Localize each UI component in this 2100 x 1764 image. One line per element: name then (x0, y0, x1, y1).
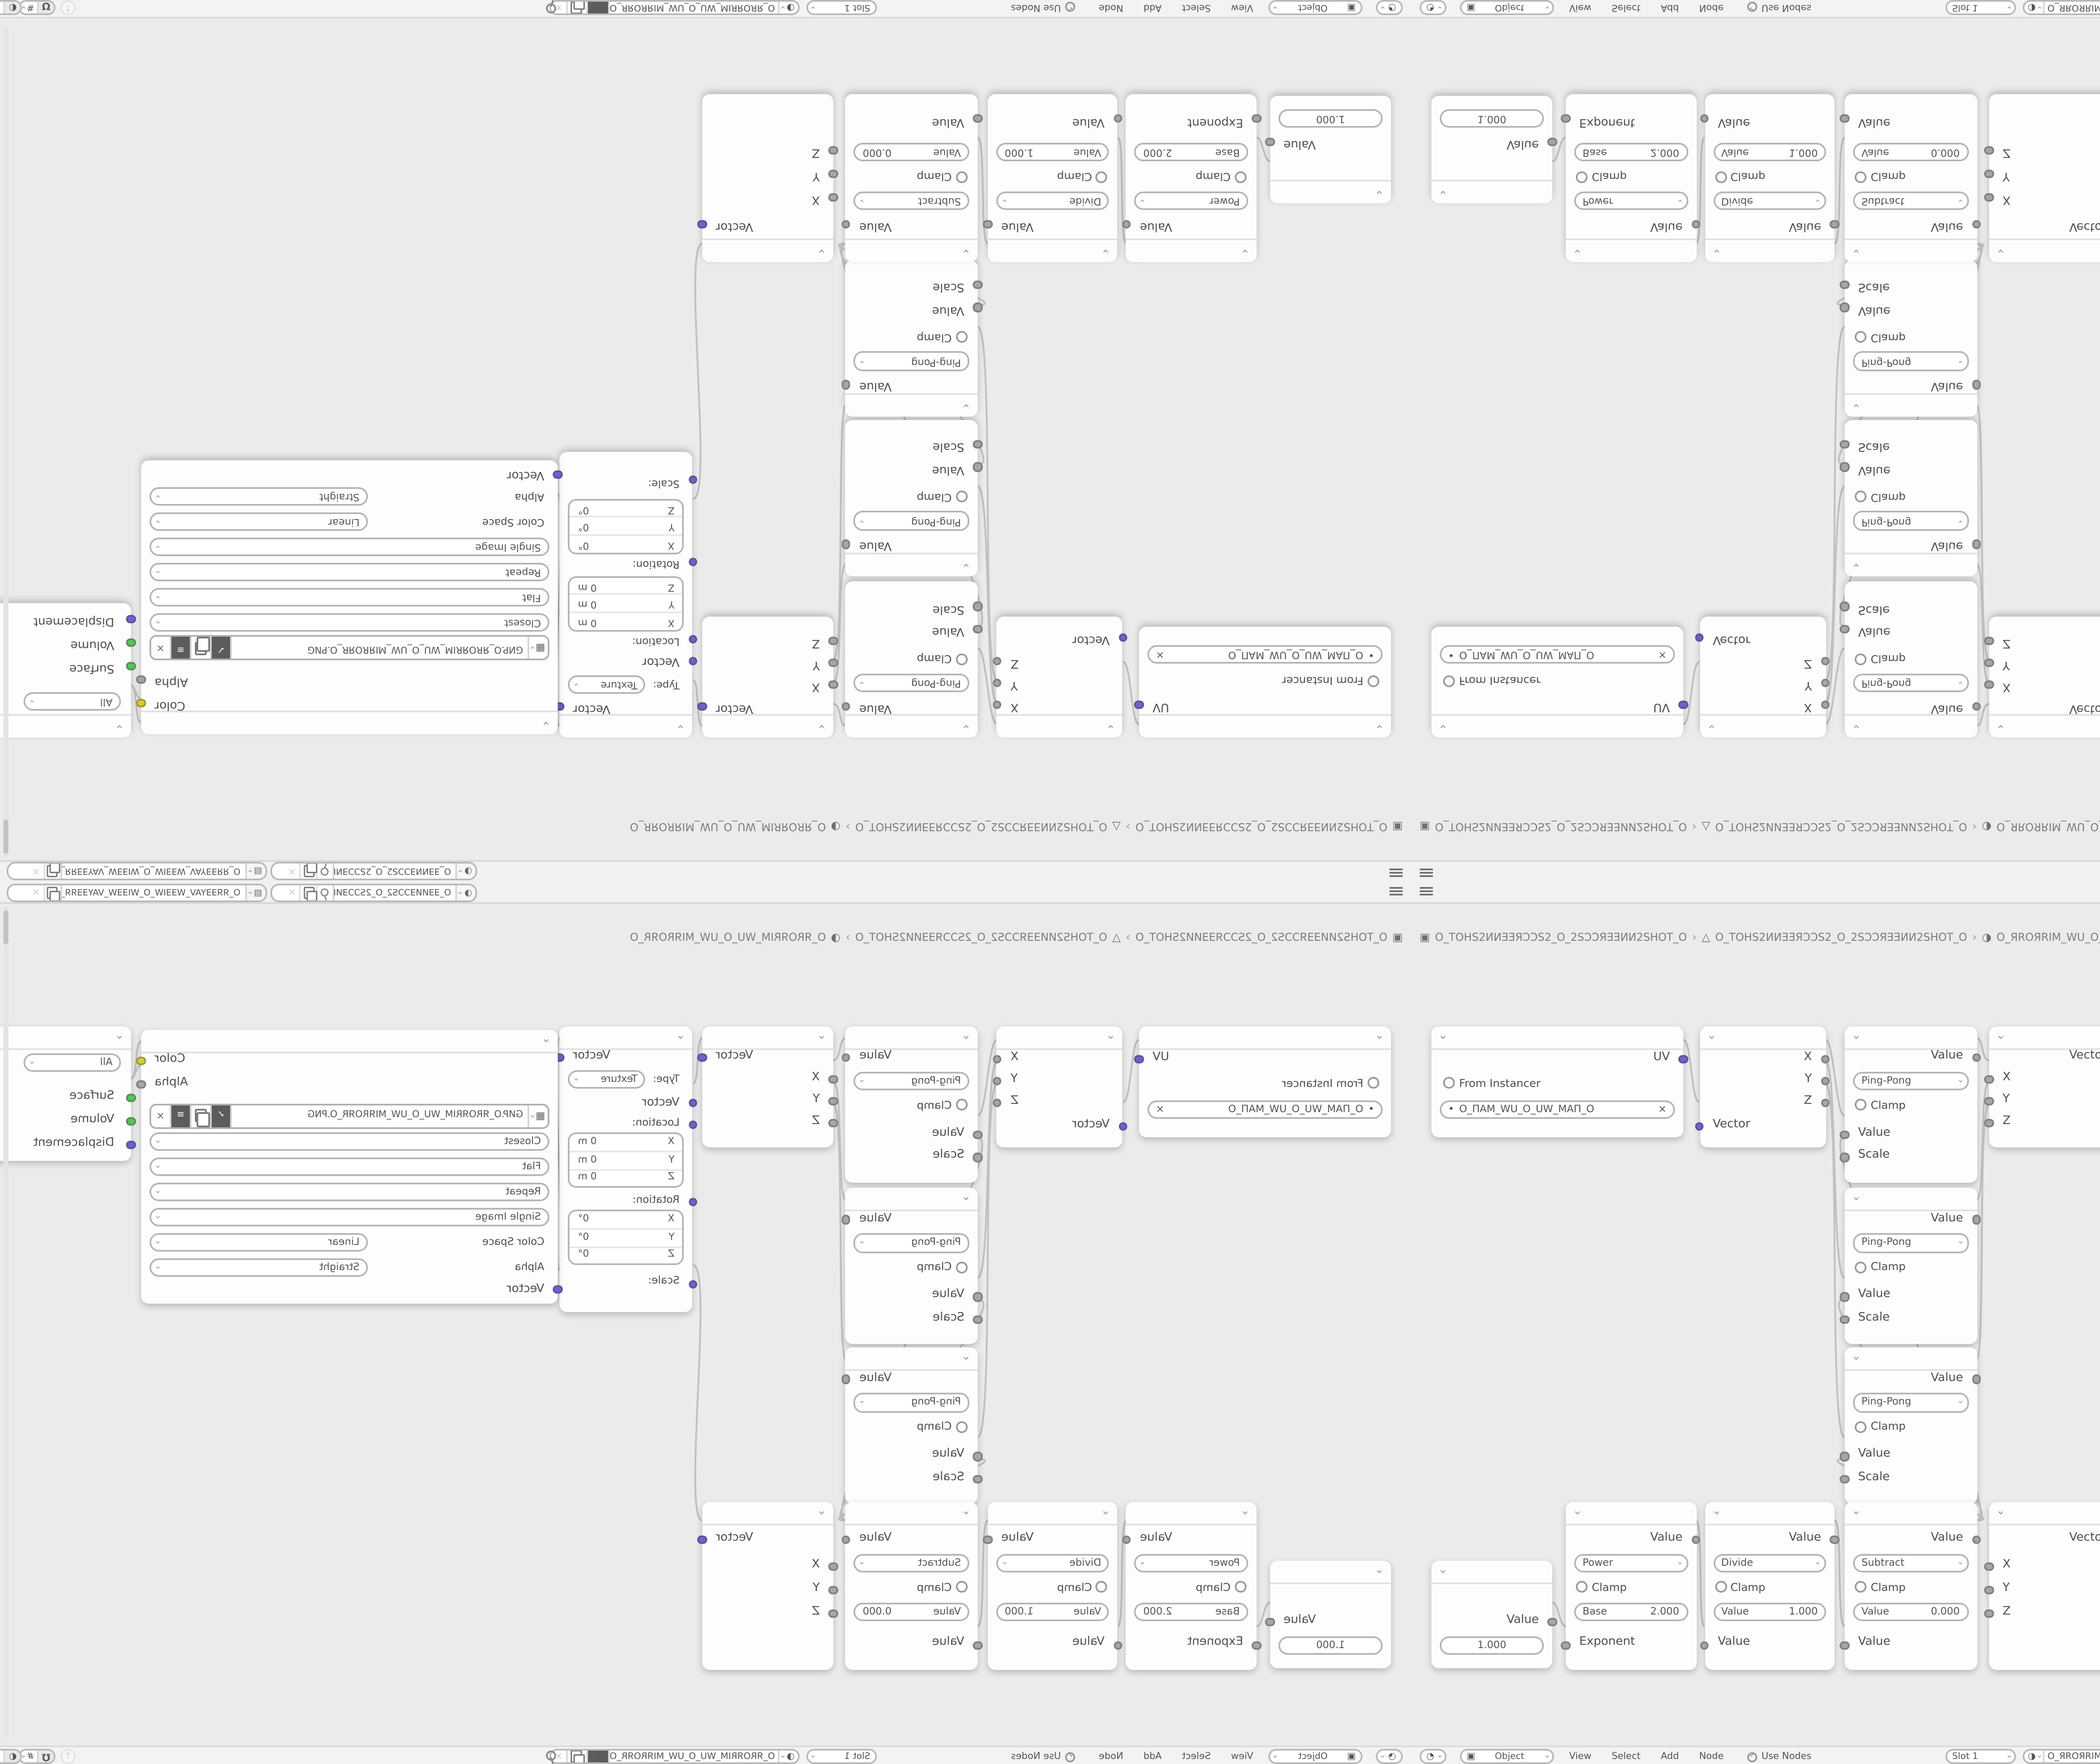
menu-view[interactable]: View (1228, 3, 1257, 13)
value-input-socket[interactable] (1700, 114, 1709, 123)
value-input-socket[interactable] (1840, 463, 1849, 472)
shader-mode-dropdown[interactable]: ▣Object› (1268, 0, 1362, 15)
combine-xyz-node[interactable]: › Vector X Y Z (702, 1026, 833, 1147)
close-icon[interactable]: × (285, 863, 300, 878)
target-dropdown[interactable]: All› (24, 692, 121, 711)
y-input-socket[interactable] (829, 1585, 838, 1594)
target-dropdown[interactable]: All› (24, 1053, 121, 1072)
scale-input-socket[interactable] (1840, 1474, 1849, 1483)
scrollbar-thumb[interactable] (3, 821, 8, 854)
vector-output-socket[interactable] (698, 1535, 707, 1544)
y-input-socket[interactable] (829, 170, 838, 179)
math-power-node[interactable]: › Value Power› Clamp Base2.000 Exponent (1126, 1501, 1257, 1669)
exponent-input-socket[interactable] (1561, 114, 1570, 123)
clamp-checkbox[interactable]: Clamp (917, 1580, 968, 1593)
collapse-icon[interactable]: › (816, 1034, 828, 1039)
clamp-checkbox[interactable]: Clamp (1855, 491, 1906, 504)
pin-button[interactable] (548, 1750, 558, 1764)
from-instancer-checkbox[interactable]: From Instancer (1443, 675, 1541, 688)
value-field[interactable]: Value0.000 (1853, 143, 1968, 162)
vector-input-socket[interactable] (688, 1098, 698, 1107)
scene-icon[interactable]: ◑› (456, 886, 475, 901)
pin-icon[interactable] (317, 863, 333, 878)
volume-input-socket[interactable] (126, 1116, 136, 1126)
collapse-icon[interactable]: › (1994, 725, 2006, 730)
collapse-icon[interactable]: › (1850, 1356, 1861, 1360)
new-material-icon[interactable] (566, 1751, 587, 1762)
material-selector[interactable]: ◑› O_ЯROЯRIM_WU_O_UW_MIЯROЯR_O ✓ × (550, 1750, 800, 1764)
collapse-icon[interactable]: › (961, 1509, 973, 1514)
math-power-node[interactable]: › Value Power› Clamp Base2.000 Exponent (1566, 1501, 1696, 1669)
collapse-icon[interactable]: › (114, 725, 126, 730)
editor-type-dropdown[interactable]: ◔› (1375, 0, 1403, 15)
alpha-mode-dropdown[interactable]: Straight› (150, 487, 368, 507)
value-input-socket[interactable] (1840, 1641, 1849, 1650)
value-input-socket[interactable] (973, 1130, 982, 1139)
operation-dropdown[interactable]: Ping-Pong› (1853, 1233, 1968, 1252)
new-viewlayer-icon[interactable] (44, 863, 60, 878)
value-input-socket[interactable] (1840, 303, 1849, 312)
uv-map-node[interactable]: › UV From Instancer • O_ПAM_WU_O_UW_MAП_… (1431, 1026, 1683, 1137)
rotation-x-field[interactable]: X0° (570, 536, 683, 554)
collapse-icon[interactable]: › (1709, 1509, 1721, 1514)
operation-dropdown[interactable]: Ping-Pong› (854, 1393, 969, 1412)
value-output-socket[interactable] (841, 540, 850, 549)
scale-input-socket[interactable] (1840, 1152, 1849, 1162)
menu-add[interactable]: Add (1657, 3, 1682, 13)
material-name-field[interactable]: O_ЯROЯRIM_WU_O_UW_MIЯROЯR_O (609, 2, 778, 13)
menu-node[interactable]: Node (1696, 3, 1727, 13)
value-node[interactable]: › Value 1.000 (1270, 1560, 1391, 1667)
snap-magnet-icon[interactable]: Ω (38, 1751, 55, 1762)
value-node[interactable]: › Value 1.000 (1431, 1560, 1552, 1667)
color-space-dropdown[interactable]: Linear› (150, 512, 368, 532)
menu-node[interactable]: Node (1095, 3, 1126, 13)
value-input-socket[interactable] (1840, 1292, 1849, 1301)
material-selector[interactable]: ◑› O_ЯROЯRIM_WU_O_UW_MIЯROЯR_O ✓ × (2023, 0, 2100, 15)
clamp-checkbox[interactable]: Clamp (917, 491, 968, 504)
extension-dropdown[interactable]: Repeat› (150, 563, 549, 582)
math-pingpong-node[interactable]: › Value Ping-Pong› Clamp Value Scale (1845, 1188, 1977, 1344)
value-output-socket[interactable] (841, 1535, 850, 1544)
value-output-socket[interactable] (841, 220, 850, 229)
value-field[interactable]: Value1.000 (996, 1602, 1110, 1621)
z-input-socket[interactable] (1984, 637, 1994, 646)
value-node[interactable]: › Value 1.000 (1431, 97, 1552, 204)
collapse-icon[interactable]: › (1850, 1196, 1861, 1201)
z-input-socket[interactable] (829, 1118, 838, 1127)
math-pingpong-node[interactable]: › Value Ping-Pong› Clamp Value Scale (846, 582, 978, 738)
rotation-fields[interactable]: X0° Y0° Z0° (568, 499, 685, 555)
uv-output-socket[interactable] (1679, 701, 1688, 710)
collapse-icon[interactable]: › (961, 1196, 973, 1201)
value-input-socket[interactable] (973, 303, 982, 312)
value-node[interactable]: › Value 1.000 (1270, 97, 1391, 204)
collapse-icon[interactable]: › (1571, 1509, 1583, 1514)
snapping-controls[interactable]: Ω #› (18, 0, 56, 15)
x-output-socket[interactable] (1821, 1054, 1830, 1063)
collapse-icon[interactable]: › (816, 1509, 828, 1514)
collapse-icon[interactable]: › (1994, 1509, 2006, 1514)
x-output-socket[interactable] (992, 701, 1002, 710)
location-input-socket[interactable] (688, 635, 698, 644)
from-instancer-checkbox[interactable]: From Instancer (1282, 675, 1379, 688)
unlink-icon[interactable]: × (151, 638, 171, 659)
y-input-socket[interactable] (829, 1096, 838, 1105)
clamp-checkbox[interactable]: Clamp (1576, 171, 1627, 184)
collapse-icon[interactable]: › (1374, 725, 1386, 730)
shader-node-editor[interactable]: ▣ O_TOHS2ИИƎƎЯƆƆS2_O_2SƆƆЯƎƎИИ2SHOT_O › … (1411, 903, 2100, 1743)
math-subtract-node[interactable]: › Value Subtract› Clamp Value0.000 Value (1845, 95, 1977, 263)
z-input-socket[interactable] (829, 146, 838, 155)
collapse-icon[interactable]: › (1850, 403, 1861, 408)
collapse-icon[interactable]: › (1436, 725, 1448, 730)
from-instancer-checkbox[interactable]: From Instancer (1443, 1076, 1541, 1089)
hamburger-menu-icon[interactable] (1420, 868, 1433, 878)
image-name-field[interactable]: GИP.O_ЯROЯRIM_WU_O_UW_MIЯROЯR_O.PNG (232, 1105, 528, 1126)
menu-select[interactable]: Select (1179, 3, 1214, 13)
base-field[interactable]: Base2.000 (1574, 1602, 1688, 1621)
location-z-field[interactable]: Z0 m (570, 1169, 683, 1186)
combine-xyz-node[interactable]: › Vector X Y Z (1989, 617, 2100, 738)
collapse-icon[interactable]: › (1571, 249, 1583, 254)
z-input-socket[interactable] (829, 1609, 838, 1618)
viewlayer-name-field[interactable]: O_ЯЯƎƎYAV_WƎƎIW_O_WIƎƎW_VAYƎƎЯЯ_O (60, 863, 245, 878)
operation-dropdown[interactable]: Power› (1574, 192, 1688, 211)
base-field[interactable]: Base2.000 (1135, 143, 1248, 162)
image-texture-node[interactable]: › Color Alpha ▦› GИP.O_ЯROЯRIM_WU_O_UW_M… (141, 461, 558, 735)
clamp-checkbox[interactable]: Clamp (1196, 171, 1247, 184)
clamp-checkbox[interactable]: Clamp (917, 1098, 968, 1111)
operation-dropdown[interactable]: Ping-Pong› (854, 512, 969, 531)
z-input-socket[interactable] (1984, 1118, 1994, 1127)
x-input-socket[interactable] (829, 1074, 838, 1084)
snap-target-dropdown[interactable]: #› (20, 1751, 37, 1762)
value-output-socket[interactable] (1830, 1535, 1839, 1544)
math-pingpong-node[interactable]: › Value Ping-Pong› Clamp Value Scale (1845, 582, 1977, 738)
value-output-socket[interactable] (1972, 1535, 1981, 1544)
color-output-socket[interactable] (136, 1056, 146, 1065)
collapse-icon[interactable]: › (961, 725, 973, 730)
clamp-checkbox[interactable]: Clamp (1855, 1260, 1906, 1273)
x-input-socket[interactable] (1984, 680, 1994, 690)
x-input-socket[interactable] (1984, 1074, 1994, 1084)
new-scene-icon[interactable] (300, 863, 317, 878)
math-pingpong-node[interactable]: › Value Ping-Pong› Clamp Value Scale (846, 1026, 978, 1182)
operation-dropdown[interactable]: Divide› (1713, 192, 1826, 211)
value-output-socket[interactable] (1972, 1053, 1981, 1062)
exponent-input-socket[interactable] (1252, 114, 1261, 123)
value-output-socket[interactable] (1972, 381, 1981, 390)
scene-selector[interactable]: ◑› O_ƎƎИИƎƆƆS2_O_2SƆƆƎИИƎƎ_O × (270, 884, 477, 903)
value-output-socket[interactable] (1972, 702, 1981, 711)
use-nodes-checkbox[interactable]: ✓ Use Nodes (1011, 0, 1075, 15)
scale-input-socket[interactable] (973, 1474, 982, 1483)
material-name-field[interactable]: O_ЯROЯRIM_WU_O_UW_MIЯROЯR_O (2044, 1751, 2100, 1762)
snap-target-dropdown[interactable]: #› (20, 2, 37, 13)
menu-select[interactable]: Select (1179, 1751, 1214, 1761)
x-output-socket[interactable] (992, 1054, 1002, 1063)
collapse-icon[interactable]: › (1850, 725, 1861, 730)
operation-dropdown[interactable]: Subtract› (1853, 192, 1968, 211)
rotation-x-field[interactable]: X0° (570, 1210, 683, 1228)
vector-input-socket[interactable] (1118, 1121, 1128, 1131)
separate-xyz-node[interactable]: › X Y Z Vector (997, 1026, 1123, 1147)
value-field[interactable]: Value1.000 (996, 143, 1110, 162)
menu-node[interactable]: Node (1095, 1751, 1126, 1761)
combine-xyz-node[interactable]: › Vector X Y Z (1989, 95, 2100, 263)
value-input-socket[interactable] (1700, 1641, 1709, 1650)
collapse-icon[interactable]: › (114, 1034, 126, 1039)
projection-dropdown[interactable]: Flat› (150, 1157, 549, 1176)
value-output-socket[interactable] (1691, 220, 1701, 229)
vector-output-socket[interactable] (698, 220, 707, 229)
slot-dropdown[interactable]: Slot 1› (1945, 0, 2016, 15)
location-input-socket[interactable] (688, 1120, 698, 1129)
value-input-socket[interactable] (1113, 114, 1123, 123)
clamp-checkbox[interactable]: Clamp (917, 171, 968, 184)
material-sphere-icon[interactable]: ◑› (2024, 1751, 2044, 1762)
collapse-icon[interactable]: › (1101, 1509, 1113, 1514)
y-output-socket[interactable] (1821, 679, 1830, 688)
image-name-field[interactable]: GИP.O_ЯROЯRIM_WU_O_UW_MIЯROЯR_O.PNG (232, 638, 528, 659)
uv-map-node[interactable]: › UV From Instancer • O_ПAM_WU_O_UW_MAП_… (1431, 627, 1683, 738)
base-field[interactable]: Base2.000 (1574, 143, 1688, 162)
value-input-socket[interactable] (973, 114, 982, 123)
scene-icon[interactable]: ◑› (456, 863, 475, 878)
scene-name-field[interactable]: O_ƎƎИИƎƆƆS2_O_2SƆƆƎИИƎƎ_O (333, 863, 456, 878)
overlay-ball-icon[interactable]: ◐ (4, 1751, 20, 1762)
volume-input-socket[interactable] (126, 638, 136, 648)
mapping-type-dropdown[interactable]: Texture› (568, 1069, 646, 1089)
clamp-checkbox[interactable]: Clamp (917, 1260, 968, 1273)
collapse-icon[interactable]: › (961, 403, 973, 408)
scale-input-socket[interactable] (973, 1152, 982, 1162)
math-pingpong-node[interactable]: › Value Ping-Pong› Clamp Value Scale (846, 420, 978, 576)
fake-user-shield-icon[interactable]: ✓ (587, 1751, 609, 1762)
value-input-socket[interactable] (1840, 114, 1849, 123)
value-field[interactable]: Value1.000 (1713, 1602, 1826, 1621)
operation-dropdown[interactable]: Divide› (996, 192, 1110, 211)
fake-user-shield-icon[interactable]: ✓ (212, 1105, 232, 1126)
collapse-icon[interactable]: › (676, 1034, 688, 1039)
x-output-socket[interactable] (1821, 701, 1830, 710)
alpha-mode-dropdown[interactable]: Straight› (150, 1257, 368, 1277)
x-input-socket[interactable] (829, 680, 838, 690)
close-icon[interactable]: × (29, 863, 44, 878)
math-pingpong-node[interactable]: › Value Ping-Pong› Clamp Value Scale (846, 260, 978, 417)
operation-dropdown[interactable]: Power› (1135, 192, 1248, 211)
operation-dropdown[interactable]: Ping-Pong› (1853, 1393, 1968, 1412)
value-output-socket[interactable] (1972, 1374, 1981, 1383)
image-browse-icon[interactable]: ▦› (528, 638, 548, 659)
displacement-input-socket[interactable] (126, 615, 136, 624)
collapse-icon[interactable]: › (1994, 249, 2006, 254)
vector-input-socket[interactable] (688, 657, 698, 666)
collapse-icon[interactable]: › (1850, 1509, 1861, 1514)
math-pingpong-node[interactable]: › Value Ping-Pong› Clamp Value Scale (1845, 420, 1977, 576)
menu-add[interactable]: Add (1657, 1751, 1682, 1761)
operation-dropdown[interactable]: Power› (1574, 1553, 1688, 1572)
image-file-row[interactable]: ▦› GИP.O_ЯROЯRIM_WU_O_UW_MIЯROЯR_O.PNG ✓… (150, 1103, 549, 1128)
x-input-socket[interactable] (829, 193, 838, 202)
scene-name-field[interactable]: O_ƎƎИИƎƆƆS2_O_2SƆƆƎИИƎƎ_O (333, 886, 456, 901)
y-input-socket[interactable] (829, 659, 838, 668)
material-sphere-icon[interactable]: ◑› (778, 1751, 798, 1762)
clamp-checkbox[interactable]: Clamp (1714, 171, 1765, 184)
mapping-node[interactable]: › Vector Type: Texture› Vector Location:… (559, 1026, 693, 1311)
z-output-socket[interactable] (1821, 657, 1830, 666)
viewlayer-selector[interactable]: ▤› O_ЯЯƎƎYAV_WƎƎIW_O_WIƎƎW_VAYƎƎЯЯ_O × (7, 884, 267, 903)
uv-map-field[interactable]: • O_ПAM_WU_O_UW_MAП_O × (1147, 645, 1383, 664)
editor-type-dropdown[interactable]: ◔› (1420, 1750, 1447, 1764)
operation-dropdown[interactable]: Ping-Pong› (854, 352, 969, 371)
value-output-socket[interactable] (1122, 1535, 1131, 1544)
rotation-z-field[interactable]: Z0° (570, 1246, 683, 1264)
operation-dropdown[interactable]: Ping-Pong› (854, 1233, 969, 1252)
value-output-socket[interactable] (1265, 138, 1275, 147)
location-x-field[interactable]: X0 m (570, 613, 683, 631)
clamp-checkbox[interactable]: Clamp (1714, 1580, 1765, 1593)
operation-dropdown[interactable]: Ping-Pong› (1853, 1071, 1968, 1090)
math-subtract-node[interactable]: › Value Subtract› Clamp Value0.000 Value (846, 95, 978, 263)
shader-mode-dropdown[interactable]: ▣Object› (1268, 1750, 1362, 1764)
math-pingpong-node[interactable]: › Value Ping-Pong› Clamp Value Scale (846, 1347, 978, 1504)
operation-dropdown[interactable]: Power› (1135, 1553, 1248, 1572)
clamp-checkbox[interactable]: Clamp (1855, 1098, 1906, 1111)
combine-xyz-node[interactable]: › Vector X Y Z (1989, 1026, 2100, 1147)
value-input-socket[interactable] (1840, 625, 1849, 634)
vector-input-socket[interactable] (553, 1284, 562, 1294)
collapse-icon[interactable]: › (1106, 725, 1118, 730)
viewlayer-name-field[interactable]: O_ЯЯƎƎYAV_WƎƎIW_O_WIƎƎW_VAYƎƎЯЯ_O (60, 886, 245, 901)
math-pingpong-node[interactable]: › Value Ping-Pong› Clamp Value Scale (1845, 260, 1977, 417)
value-output-socket[interactable] (841, 1374, 850, 1383)
collapse-icon[interactable]: › (1994, 1034, 2006, 1039)
math-divide-node[interactable]: › Value Divide› Clamp Value1.000 Value (1704, 1501, 1835, 1669)
menu-view[interactable]: View (1566, 1751, 1595, 1761)
uv-output-socket[interactable] (1134, 1054, 1144, 1063)
clamp-checkbox[interactable]: Clamp (1855, 1420, 1906, 1433)
material-sphere-icon[interactable]: ◑› (778, 2, 798, 13)
uv-map-field[interactable]: • O_ПAM_WU_O_UW_MAП_O × (1440, 1100, 1675, 1119)
gpu-up-arrow-button[interactable]: ↑ (60, 1750, 76, 1764)
color-space-dropdown[interactable]: Linear› (150, 1232, 368, 1252)
hamburger-menu-icon[interactable] (1389, 868, 1403, 878)
collapse-icon[interactable]: › (816, 249, 828, 254)
operation-dropdown[interactable]: Ping-Pong› (854, 674, 969, 693)
collapse-icon[interactable]: › (961, 563, 973, 567)
menu-add[interactable]: Add (1140, 3, 1165, 13)
math-divide-node[interactable]: › Value Divide› Clamp Value1.000 Value (1704, 95, 1835, 263)
overlay-ball-icon[interactable]: ◐ (4, 2, 20, 13)
material-name-field[interactable]: O_ЯROЯRIM_WU_O_UW_MIЯROЯR_O (609, 1751, 778, 1762)
separate-xyz-node[interactable]: › X Y Z Vector (1699, 1026, 1825, 1147)
fake-user-shield-icon[interactable]: ✓ (212, 638, 232, 659)
uv-map-field[interactable]: • O_ПAM_WU_O_UW_MAП_O × (1440, 645, 1675, 664)
uv-map-node[interactable]: › UV From Instancer • O_ПAM_WU_O_UW_MAП_… (1139, 627, 1391, 738)
scrollbar-thumb[interactable] (3, 910, 8, 943)
scrollbar[interactable] (3, 906, 8, 1736)
scale-input-socket[interactable] (1840, 440, 1849, 449)
value-output-socket[interactable] (983, 220, 992, 229)
rotation-fields[interactable]: X0° Y0° Z0° (568, 1209, 685, 1265)
unlink-icon[interactable]: × (151, 1105, 171, 1126)
collapse-icon[interactable]: › (676, 725, 688, 730)
value-input-socket[interactable] (1840, 1452, 1849, 1461)
separate-xyz-node[interactable]: › X Y Z Vector (1699, 617, 1825, 738)
collapse-icon[interactable]: › (1709, 249, 1721, 254)
menu-select[interactable]: Select (1608, 1751, 1644, 1761)
menu-view[interactable]: View (1228, 1751, 1257, 1761)
snap-magnet-icon[interactable]: Ω (38, 2, 55, 13)
scrollbar[interactable] (3, 28, 8, 858)
color-output-socket[interactable] (136, 699, 146, 708)
value-output-socket[interactable] (1972, 540, 1981, 549)
scale-input-socket[interactable] (688, 1279, 698, 1289)
new-image-icon[interactable] (192, 1105, 212, 1126)
y-output-socket[interactable] (992, 1076, 1002, 1085)
collapse-icon[interactable]: › (1101, 249, 1113, 254)
scale-input-socket[interactable] (973, 440, 982, 449)
exponent-input-socket[interactable] (1561, 1641, 1570, 1650)
y-output-socket[interactable] (992, 679, 1002, 688)
overlay-chevron[interactable]: › (0, 1751, 4, 1762)
value-output-socket[interactable] (841, 1215, 850, 1224)
close-icon[interactable]: × (1156, 649, 1164, 661)
value-input-socket[interactable] (973, 463, 982, 472)
mapping-node[interactable]: › Vector Type: Texture› Vector Location:… (559, 453, 693, 738)
value-field[interactable]: 1.000 (1278, 1635, 1383, 1655)
scale-input-socket[interactable] (973, 602, 982, 612)
collapse-icon[interactable]: › (1850, 563, 1861, 567)
shader-mode-dropdown[interactable]: ▣Object› (1460, 1750, 1554, 1764)
menu-select[interactable]: Select (1608, 3, 1644, 13)
material-output-node[interactable]: › All› Surface Volume Displacement (0, 604, 131, 738)
extension-dropdown[interactable]: Repeat› (150, 1182, 549, 1201)
collapse-icon[interactable]: › (1850, 249, 1861, 254)
menu-view[interactable]: View (1566, 3, 1595, 13)
operation-dropdown[interactable]: Subtract› (1853, 1553, 1968, 1572)
operation-dropdown[interactable]: Subtract› (854, 192, 969, 211)
x-input-socket[interactable] (829, 1562, 838, 1571)
alpha-output-socket[interactable] (136, 1079, 146, 1089)
close-icon[interactable]: × (285, 886, 300, 901)
y-input-socket[interactable] (1984, 1096, 1994, 1105)
use-nodes-checkbox[interactable]: ✓ Use Nodes (1747, 0, 1811, 15)
close-icon[interactable]: × (1156, 1103, 1164, 1115)
clamp-checkbox[interactable]: Clamp (917, 1420, 968, 1433)
vector-output-socket[interactable] (698, 1053, 707, 1062)
collapse-icon[interactable]: › (961, 249, 973, 254)
material-name-field[interactable]: O_ЯROЯRIM_WU_O_UW_MIЯROЯR_O (2044, 2, 2100, 13)
uv-output-socket[interactable] (1134, 701, 1144, 710)
collapse-icon[interactable]: › (1704, 1034, 1716, 1039)
value-input-socket[interactable] (1840, 1130, 1849, 1139)
collapse-icon[interactable]: › (1240, 249, 1252, 254)
new-scene-icon[interactable] (300, 886, 317, 901)
value-output-socket[interactable] (983, 1535, 992, 1544)
math-pingpong-node[interactable]: › Value Ping-Pong› Clamp Value Scale (1845, 1026, 1977, 1182)
slot-dropdown[interactable]: Slot 1› (806, 0, 877, 15)
combine-xyz-node[interactable]: › Vector X Y Z (702, 95, 833, 263)
vector-input-socket[interactable] (1695, 1121, 1704, 1131)
operation-dropdown[interactable]: Ping-Pong› (854, 1071, 969, 1090)
pin-button[interactable] (548, 0, 558, 15)
close-icon[interactable]: × (1658, 649, 1667, 661)
clamp-checkbox[interactable]: Clamp (1855, 653, 1906, 666)
collapse-icon[interactable]: › (1436, 191, 1448, 195)
